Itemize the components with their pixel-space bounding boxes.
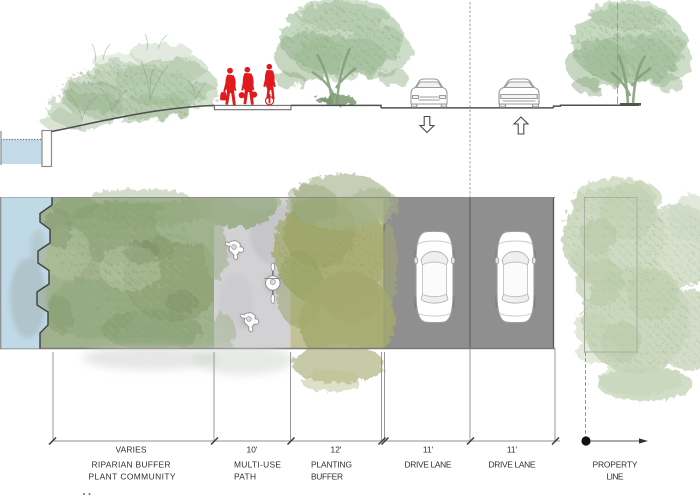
svg-text:PATH: PATH xyxy=(234,472,256,482)
svg-text:12': 12' xyxy=(331,445,342,455)
svg-text:MULTI-USE: MULTI-USE xyxy=(234,460,281,470)
svg-text:BUFFER: BUFFER xyxy=(311,472,343,482)
svg-text:PLANTING: PLANTING xyxy=(311,460,352,470)
svg-text:11': 11' xyxy=(507,445,518,455)
svg-text:DRIVE LANE: DRIVE LANE xyxy=(405,460,452,470)
svg-text:DRIVE LANE: DRIVE LANE xyxy=(489,460,536,470)
svg-text:11': 11' xyxy=(423,445,434,455)
svg-text:VARIES: VARIES xyxy=(116,445,147,455)
svg-text:PLANT COMMUNITY: PLANT COMMUNITY xyxy=(89,472,176,482)
svg-text:RIPARIAN BUFFER: RIPARIAN BUFFER xyxy=(92,460,171,470)
svg-text:PROPERTY: PROPERTY xyxy=(593,460,638,470)
svg-text:LINE: LINE xyxy=(607,472,624,482)
svg-text:10': 10' xyxy=(247,445,258,455)
